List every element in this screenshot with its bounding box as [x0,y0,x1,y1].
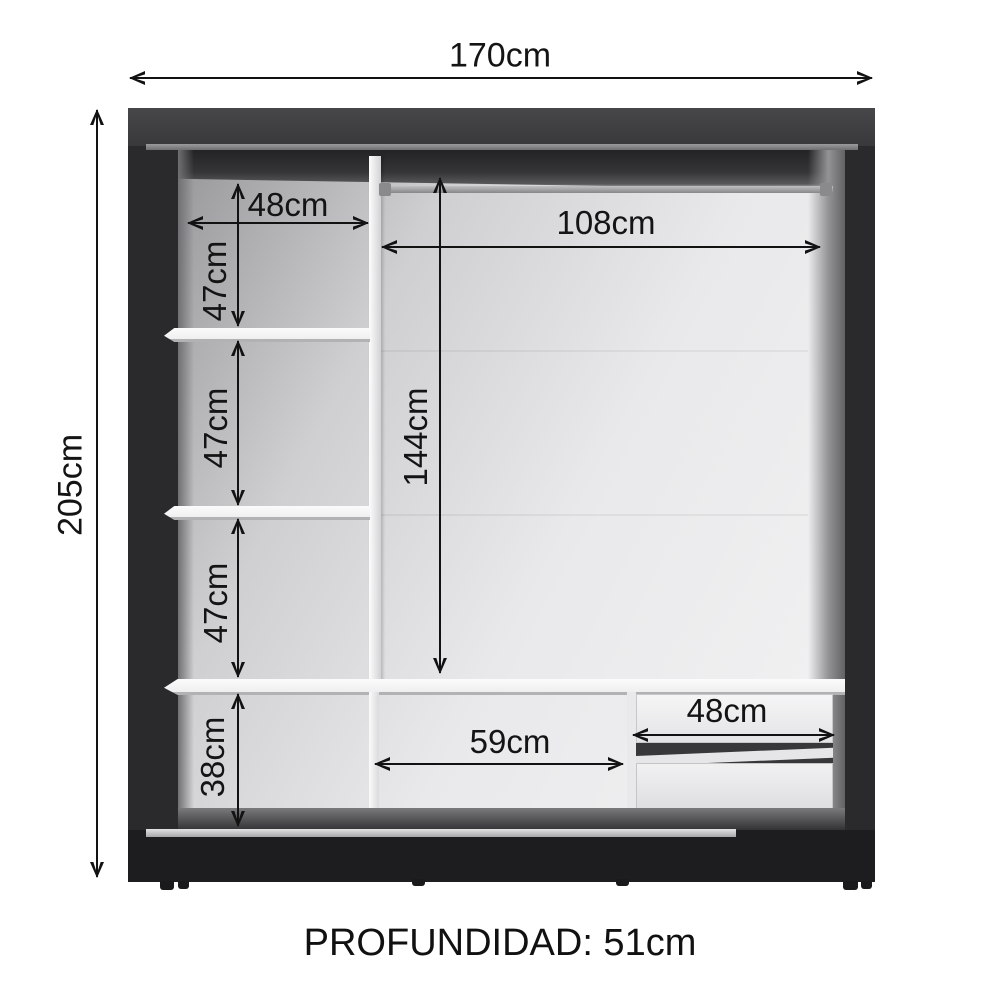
foot [843,881,858,890]
overall-width-label: 170cm [449,37,551,76]
bottom-section-height-label: 38cm [194,717,232,798]
overall-height-label: 205cm [52,434,91,536]
section-height-1-label: 47cm [196,241,234,322]
rod-bracket-left [379,183,391,196]
back-panel-seam [381,514,808,516]
foot [160,881,174,890]
section-height-3-label: 47cm [197,563,235,644]
depth-note: PROFUNDIDAD: 51cm [0,922,1000,965]
drawer-width-label: 48cm [687,692,768,730]
back-panel-seam [381,350,808,352]
section-height-1-arrow [237,184,239,326]
wardrobe-dimension-diagram: 170cm 205cm 48cm 47cm 47cm 47cm 38cm [0,0,1000,1000]
section-height-2-arrow [237,341,239,505]
bottom-middle-width-label: 59cm [470,723,551,761]
base-door-track [146,829,736,837]
open-drawer-edge [636,748,833,763]
shelf-width-label: 48cm [248,186,329,224]
bottom-middle-width-arrow [375,763,623,765]
drawer-gap [636,743,833,763]
overall-height-arrow [96,110,98,877]
hanging-height-label: 144cm [397,387,435,486]
drawer-side-panel [627,692,636,813]
left-shelf-1 [164,328,370,342]
rod-bracket-right [820,183,832,196]
drawer-width-arrow [633,734,834,736]
foot [861,881,872,889]
foot [412,879,425,886]
shelf-width-arrow [188,222,368,224]
left-wall-shade [178,150,194,813]
left-shelf-2 [164,506,370,520]
rod-width-label: 108cm [556,204,655,242]
hanging-height-arrow [439,178,441,673]
rod-width-arrow [382,246,820,248]
section-height-2-label: 47cm [197,388,235,469]
foot [178,881,189,889]
base-panel [128,830,875,882]
section-height-3-arrow [237,519,239,677]
drawer-bottom-open [636,763,833,813]
foot [616,879,629,886]
top-panel [128,108,875,146]
center-divider-panel [369,156,381,692]
overall-width-arrow [130,77,872,79]
hanging-rod [381,186,833,193]
bottom-section-height-arrow [237,694,239,826]
bottom-divider-panel [369,692,379,813]
